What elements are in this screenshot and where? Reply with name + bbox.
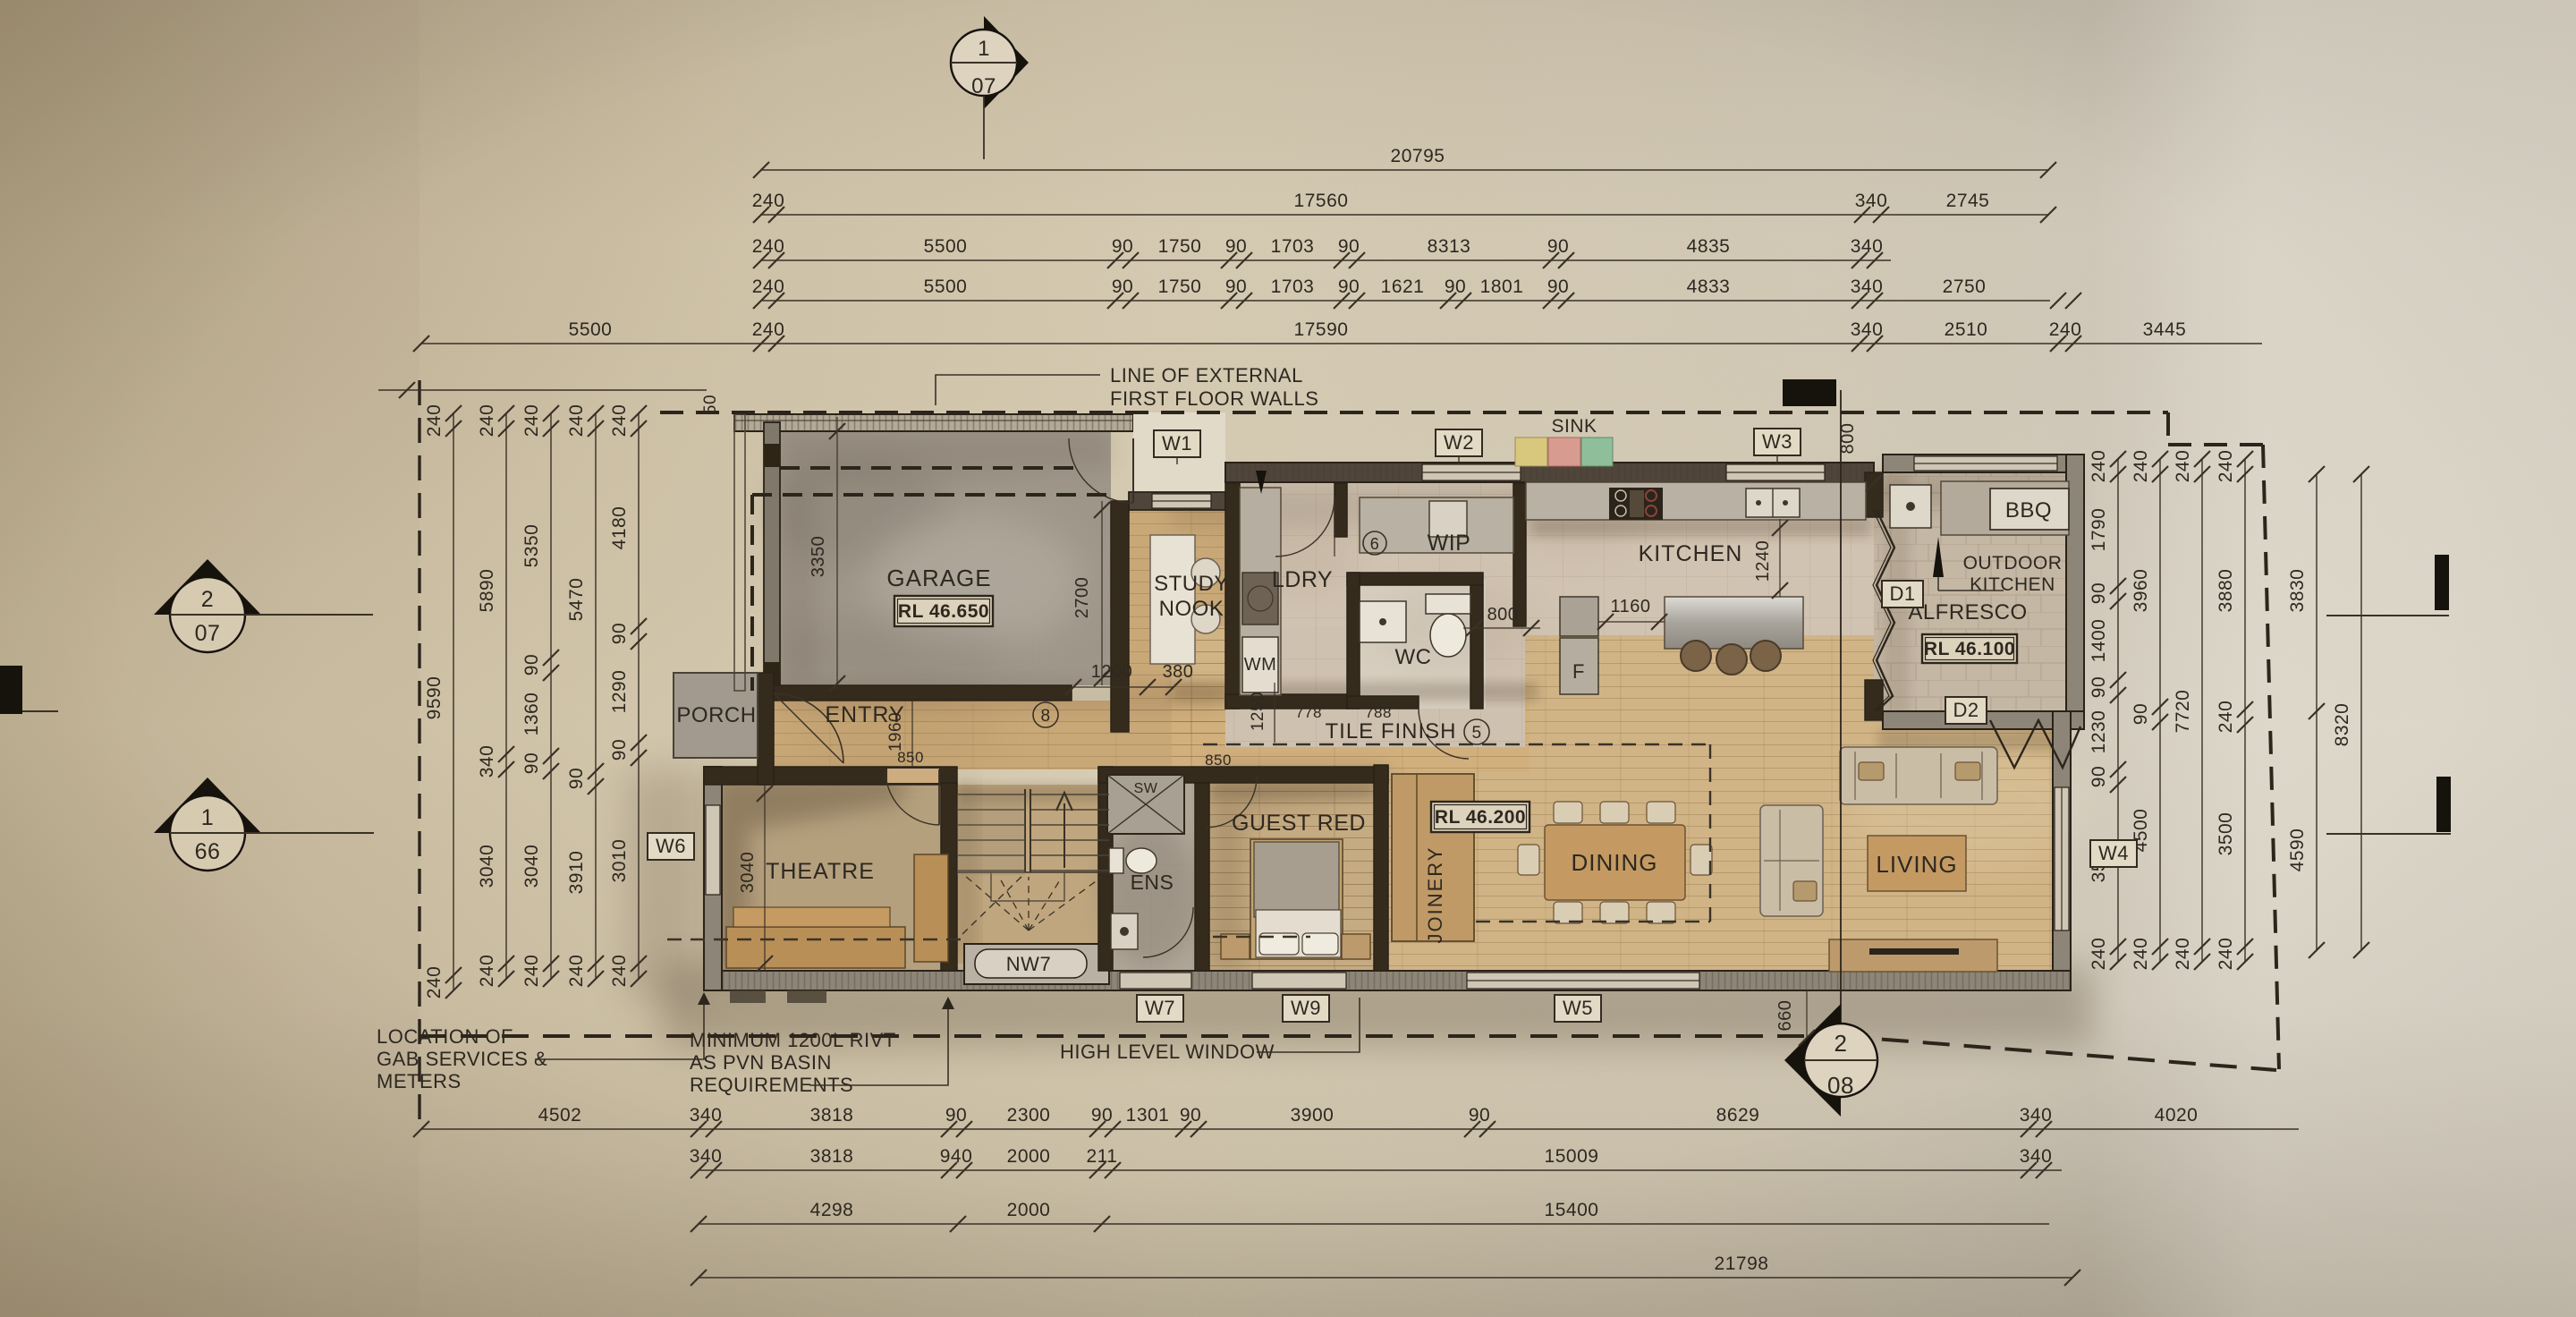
svg-text:90: 90 — [609, 739, 630, 760]
svg-text:240: 240 — [566, 404, 587, 438]
svg-text:NW7: NW7 — [1006, 953, 1051, 975]
svg-text:240: 240 — [609, 955, 630, 988]
svg-text:240: 240 — [2131, 450, 2151, 483]
svg-text:D1: D1 — [1889, 582, 1915, 605]
svg-text:W5: W5 — [1563, 997, 1593, 1019]
svg-text:TILE FINISH: TILE FINISH — [1325, 719, 1456, 743]
svg-text:340: 340 — [1851, 236, 1884, 257]
svg-text:1230: 1230 — [2089, 710, 2109, 754]
svg-text:SINK: SINK — [1551, 416, 1597, 437]
svg-text:340: 340 — [477, 745, 497, 778]
svg-text:W9: W9 — [1291, 997, 1321, 1019]
svg-text:3880: 3880 — [2216, 569, 2236, 613]
svg-text:5500: 5500 — [924, 236, 968, 257]
svg-text:240: 240 — [477, 404, 497, 438]
svg-text:90: 90 — [1445, 276, 1466, 297]
svg-text:4298: 4298 — [810, 1200, 854, 1220]
svg-text:90: 90 — [1338, 236, 1360, 257]
svg-text:PORCH: PORCH — [676, 703, 756, 727]
svg-text:LIVING: LIVING — [1876, 851, 1957, 878]
svg-text:800: 800 — [1838, 423, 1858, 455]
svg-text:1621: 1621 — [1381, 276, 1425, 297]
svg-text:9590: 9590 — [424, 676, 445, 720]
svg-text:2700: 2700 — [1072, 577, 1092, 619]
svg-text:4590: 4590 — [2287, 828, 2308, 872]
svg-text:4020: 4020 — [2155, 1105, 2199, 1126]
svg-text:240: 240 — [2089, 450, 2109, 483]
svg-text:240: 240 — [2173, 938, 2193, 971]
svg-text:90: 90 — [1338, 276, 1360, 297]
svg-text:5: 5 — [1471, 724, 1481, 743]
svg-text:850: 850 — [897, 749, 924, 766]
svg-text:90: 90 — [1112, 276, 1133, 297]
svg-text:1: 1 — [978, 37, 990, 61]
svg-text:3818: 3818 — [810, 1105, 854, 1126]
svg-text:3830: 3830 — [2287, 569, 2308, 613]
svg-text:1360: 1360 — [521, 692, 542, 736]
svg-text:RL 46.200: RL 46.200 — [1435, 807, 1526, 828]
svg-text:W7: W7 — [1145, 997, 1175, 1019]
svg-text:D2: D2 — [1953, 699, 1979, 721]
svg-text:LOCATION OF: LOCATION OF — [377, 1025, 513, 1048]
svg-text:KITCHEN: KITCHEN — [1639, 541, 1743, 566]
svg-text:2300: 2300 — [1007, 1105, 1051, 1126]
svg-text:240: 240 — [521, 404, 542, 438]
svg-text:90: 90 — [521, 752, 542, 774]
svg-text:90: 90 — [1547, 236, 1569, 257]
svg-text:340: 340 — [2020, 1105, 2053, 1126]
svg-text:HIGH LEVEL WINDOW: HIGH LEVEL WINDOW — [1060, 1041, 1275, 1063]
svg-text:240: 240 — [752, 319, 785, 340]
svg-text:5500: 5500 — [924, 276, 968, 297]
svg-text:90: 90 — [2089, 766, 2109, 787]
svg-text:15400: 15400 — [1545, 1200, 1599, 1220]
svg-text:THEATRE: THEATRE — [766, 859, 875, 884]
svg-text:1400: 1400 — [2089, 619, 2109, 663]
svg-text:OUTDOOR: OUTDOOR — [1963, 553, 2063, 574]
svg-text:6: 6 — [1370, 535, 1380, 553]
svg-text:1160: 1160 — [1610, 597, 1650, 616]
svg-text:660: 660 — [1775, 1000, 1795, 1032]
svg-text:1290: 1290 — [609, 670, 630, 714]
svg-text:240: 240 — [424, 966, 445, 999]
svg-text:90: 90 — [945, 1105, 967, 1126]
svg-text:07: 07 — [971, 74, 996, 98]
svg-text:20795: 20795 — [1391, 146, 1445, 166]
svg-text:W2: W2 — [1444, 431, 1474, 454]
svg-text:2745: 2745 — [1946, 191, 1990, 211]
svg-text:3010: 3010 — [609, 839, 630, 883]
svg-text:1801: 1801 — [1480, 276, 1524, 297]
svg-text:4833: 4833 — [1687, 276, 1731, 297]
svg-text:ENTRY: ENTRY — [825, 702, 904, 727]
svg-text:1750: 1750 — [1158, 236, 1202, 257]
svg-text:JOINERY: JOINERY — [1424, 846, 1446, 944]
svg-text:50: 50 — [701, 395, 720, 414]
svg-text:2750: 2750 — [1943, 276, 1987, 297]
svg-text:3500: 3500 — [2216, 812, 2236, 856]
svg-text:W4: W4 — [2098, 842, 2129, 864]
svg-text:ENS: ENS — [1131, 871, 1174, 894]
svg-text:240: 240 — [566, 955, 587, 988]
svg-text:3445: 3445 — [2143, 319, 2187, 340]
svg-text:1703: 1703 — [1271, 236, 1315, 257]
svg-text:240: 240 — [521, 955, 542, 988]
svg-text:STUDY: STUDY — [1154, 572, 1229, 596]
svg-text:1240: 1240 — [1753, 540, 1773, 582]
svg-text:211: 211 — [1087, 1146, 1118, 1167]
svg-text:W1: W1 — [1162, 432, 1192, 455]
svg-text:07: 07 — [195, 621, 221, 646]
svg-text:240: 240 — [752, 191, 785, 211]
svg-text:WIP: WIP — [1428, 531, 1471, 556]
svg-text:1703: 1703 — [1271, 276, 1315, 297]
svg-text:17590: 17590 — [1294, 319, 1349, 340]
svg-text:7720: 7720 — [2173, 690, 2193, 734]
svg-text:AS PVN BASIN: AS PVN BASIN — [690, 1051, 832, 1074]
svg-text:NOOK: NOOK — [1159, 597, 1224, 621]
svg-text:90: 90 — [1469, 1105, 1490, 1126]
svg-text:240: 240 — [2216, 450, 2236, 483]
svg-text:3818: 3818 — [810, 1146, 854, 1167]
svg-text:90: 90 — [1225, 236, 1247, 257]
svg-text:1790: 1790 — [2089, 508, 2109, 552]
svg-text:MINIMUM 1200L RIVT: MINIMUM 1200L RIVT — [690, 1029, 896, 1051]
svg-text:WM: WM — [1244, 655, 1277, 675]
svg-text:1750: 1750 — [1158, 276, 1202, 297]
svg-text:90: 90 — [1112, 236, 1133, 257]
svg-text:340: 340 — [690, 1146, 723, 1167]
svg-text:3040: 3040 — [521, 845, 542, 888]
svg-text:SW: SW — [1134, 781, 1158, 796]
svg-text:2: 2 — [1835, 1030, 1848, 1057]
svg-text:4835: 4835 — [1687, 236, 1731, 257]
svg-text:90: 90 — [566, 768, 587, 789]
svg-text:340: 340 — [2020, 1146, 2053, 1167]
svg-text:3040: 3040 — [738, 852, 758, 894]
svg-text:3910: 3910 — [566, 851, 587, 895]
svg-text:RL 46.100: RL 46.100 — [1924, 639, 2015, 659]
svg-text:66: 66 — [195, 839, 221, 864]
svg-text:90: 90 — [1180, 1105, 1201, 1126]
svg-text:90: 90 — [2131, 703, 2151, 725]
svg-text:GUEST RED: GUEST RED — [1232, 811, 1366, 836]
svg-text:2000: 2000 — [1007, 1146, 1051, 1167]
svg-text:240: 240 — [2049, 319, 2082, 340]
svg-text:340: 340 — [1851, 319, 1884, 340]
svg-text:240: 240 — [424, 404, 445, 438]
svg-text:3960: 3960 — [2131, 569, 2151, 613]
svg-text:240: 240 — [2216, 701, 2236, 734]
svg-text:BBQ: BBQ — [2005, 498, 2052, 523]
svg-text:4180: 4180 — [609, 506, 630, 550]
svg-text:2: 2 — [201, 587, 214, 612]
svg-text:90: 90 — [1225, 276, 1247, 297]
svg-text:1250: 1250 — [1249, 692, 1267, 731]
svg-text:8320: 8320 — [2332, 703, 2352, 747]
svg-text:240: 240 — [2131, 938, 2151, 971]
svg-text:240: 240 — [2089, 938, 2109, 971]
svg-text:800: 800 — [1487, 605, 1519, 625]
svg-text:5500: 5500 — [569, 319, 613, 340]
svg-text:08: 08 — [1827, 1072, 1854, 1099]
svg-text:240: 240 — [2173, 450, 2193, 483]
svg-text:17560: 17560 — [1294, 191, 1349, 211]
svg-text:240: 240 — [752, 236, 785, 257]
svg-text:15009: 15009 — [1545, 1146, 1599, 1167]
svg-text:LINE OF EXTERNAL: LINE OF EXTERNAL — [1110, 364, 1303, 387]
svg-text:1200: 1200 — [1091, 662, 1133, 682]
svg-text:340: 340 — [1851, 276, 1884, 297]
svg-text:F: F — [1572, 660, 1585, 683]
svg-text:90: 90 — [1091, 1105, 1113, 1126]
svg-text:778: 778 — [1295, 704, 1322, 721]
svg-text:240: 240 — [477, 955, 497, 988]
svg-text:90: 90 — [2089, 676, 2109, 698]
svg-text:FIRST FLOOR WALLS: FIRST FLOOR WALLS — [1110, 387, 1318, 410]
svg-text:RL 46.650: RL 46.650 — [898, 601, 989, 622]
svg-text:DINING: DINING — [1572, 849, 1658, 876]
svg-text:3040: 3040 — [477, 845, 497, 888]
svg-text:90: 90 — [521, 654, 542, 675]
svg-text:GAB SERVICES &: GAB SERVICES & — [377, 1048, 547, 1070]
svg-text:WC: WC — [1395, 645, 1432, 669]
svg-text:90: 90 — [609, 623, 630, 644]
svg-text:240: 240 — [752, 276, 785, 297]
svg-text:5470: 5470 — [566, 578, 587, 622]
svg-text:KITCHEN: KITCHEN — [1970, 574, 2055, 595]
svg-text:380: 380 — [1163, 662, 1194, 682]
svg-text:8313: 8313 — [1428, 236, 1471, 257]
svg-text:METERS: METERS — [377, 1070, 462, 1092]
svg-text:8629: 8629 — [1716, 1105, 1760, 1126]
svg-text:3350: 3350 — [809, 536, 828, 578]
svg-text:5350: 5350 — [521, 524, 542, 568]
svg-text:90: 90 — [1547, 276, 1569, 297]
svg-text:240: 240 — [609, 404, 630, 438]
svg-text:240: 240 — [2216, 938, 2236, 971]
svg-text:8: 8 — [1040, 707, 1050, 726]
svg-text:LDRY: LDRY — [1272, 567, 1333, 592]
svg-text:1301: 1301 — [1126, 1105, 1170, 1126]
svg-text:W6: W6 — [656, 835, 686, 857]
svg-text:21798: 21798 — [1715, 1253, 1769, 1274]
svg-text:340: 340 — [1855, 191, 1888, 211]
svg-text:4502: 4502 — [538, 1105, 582, 1126]
svg-text:340: 340 — [690, 1105, 723, 1126]
svg-text:2000: 2000 — [1007, 1200, 1051, 1220]
svg-text:850: 850 — [1205, 752, 1232, 769]
svg-text:5890: 5890 — [477, 569, 497, 613]
svg-text:GARAGE: GARAGE — [886, 565, 991, 591]
svg-text:90: 90 — [2089, 582, 2109, 604]
svg-text:W3: W3 — [1762, 430, 1792, 453]
svg-text:2510: 2510 — [1945, 319, 1988, 340]
svg-text:1: 1 — [201, 805, 214, 830]
svg-text:3900: 3900 — [1291, 1105, 1335, 1126]
svg-text:ALFRESCO: ALFRESCO — [1908, 600, 2027, 625]
svg-text:940: 940 — [940, 1146, 973, 1167]
